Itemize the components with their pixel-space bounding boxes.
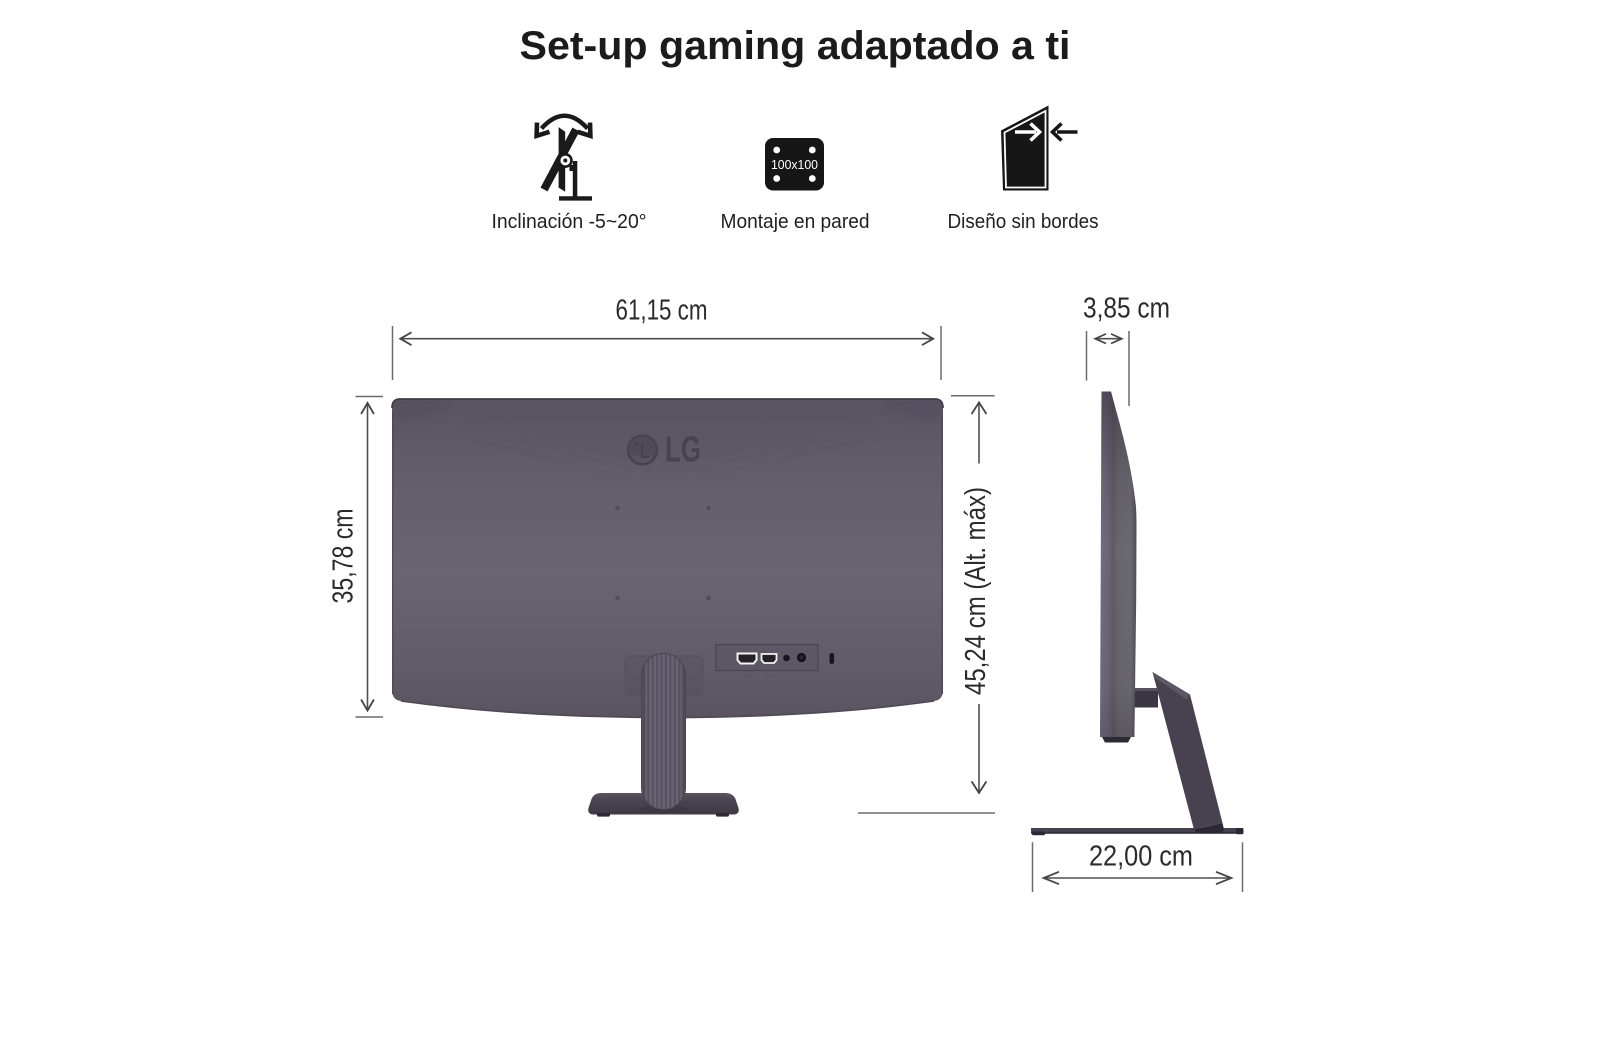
svg-text:45,24 cm (Alt. máx): 45,24 cm (Alt. máx) xyxy=(960,487,992,695)
svg-text:Montaje en pared: Montaje en pared xyxy=(721,211,870,233)
svg-text:Inclinación -5~20°: Inclinación -5~20° xyxy=(492,211,647,233)
svg-text:Set-up gaming adaptado a ti: Set-up gaming adaptado a ti xyxy=(520,24,1071,68)
svg-text:LG: LG xyxy=(665,429,701,469)
svg-text:22,00 cm: 22,00 cm xyxy=(1089,841,1193,873)
svg-text:100x100: 100x100 xyxy=(771,157,818,172)
svg-text:Diseño sin bordes: Diseño sin bordes xyxy=(948,211,1099,233)
svg-text:61,15 cm: 61,15 cm xyxy=(616,295,708,327)
svg-text:3,85 cm: 3,85 cm xyxy=(1083,293,1170,325)
svg-text:35,78 cm: 35,78 cm xyxy=(328,509,360,604)
